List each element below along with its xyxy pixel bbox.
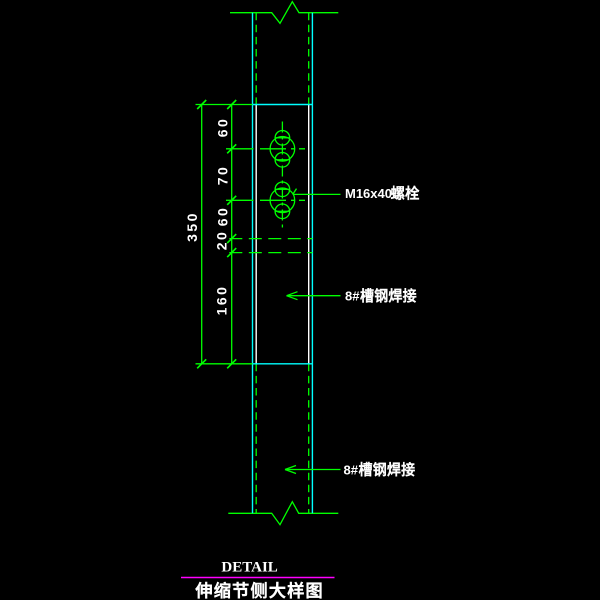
svg-text:60: 60	[215, 206, 231, 227]
svg-text:8#: 8#	[345, 289, 360, 304]
svg-text:70: 70	[215, 165, 231, 186]
svg-text:350: 350	[184, 211, 200, 242]
svg-text:M16x40: M16x40	[345, 186, 392, 201]
svg-text:20: 20	[214, 230, 230, 251]
svg-text:160: 160	[214, 285, 230, 316]
svg-text:DETAIL: DETAIL	[221, 559, 277, 575]
svg-text:60: 60	[215, 117, 231, 138]
svg-text:8#: 8#	[344, 463, 359, 478]
